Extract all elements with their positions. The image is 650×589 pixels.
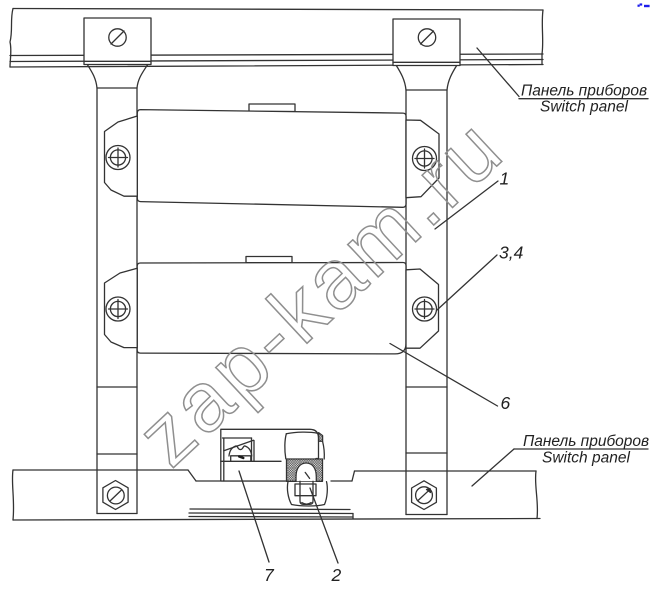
- svg-text:3,4: 3,4: [499, 243, 524, 263]
- svg-text:Панель приборов: Панель приборов: [521, 83, 647, 100]
- svg-text:7: 7: [264, 565, 275, 585]
- svg-text:2: 2: [331, 565, 342, 585]
- svg-text:Switch panel: Switch panel: [540, 99, 628, 116]
- svg-text:6: 6: [501, 393, 511, 413]
- svg-text:Панель приборов: Панель приборов: [523, 433, 649, 450]
- svg-text:Switch panel: Switch panel: [542, 450, 630, 467]
